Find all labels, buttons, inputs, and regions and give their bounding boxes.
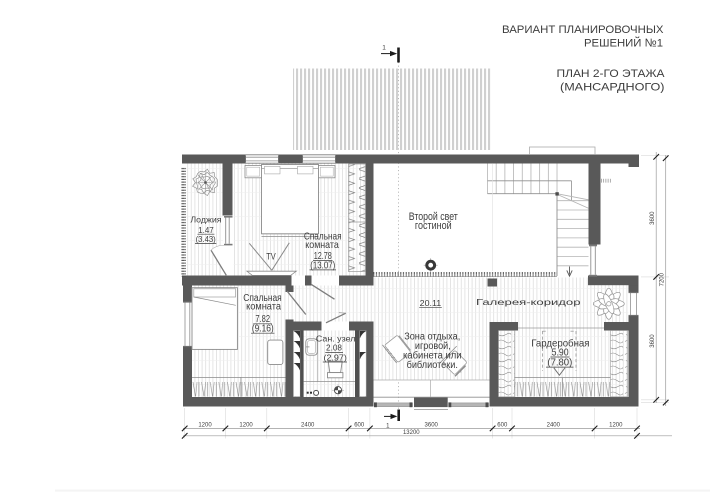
svg-text:2400: 2400 bbox=[547, 422, 561, 428]
svg-text:(3.43): (3.43) bbox=[196, 235, 216, 244]
svg-text:гостиной: гостиной bbox=[415, 220, 452, 232]
svg-text:Галерея-коридор: Галерея-коридор bbox=[476, 297, 581, 307]
svg-text:РЕШЕНИЙ №1: РЕШЕНИЙ №1 bbox=[584, 37, 663, 50]
svg-text:(МАНСАРДНОГО): (МАНСАРДНОГО) bbox=[560, 82, 665, 94]
svg-text:2.08: 2.08 bbox=[326, 344, 342, 353]
svg-text:3600: 3600 bbox=[650, 211, 656, 225]
svg-text:(2.97): (2.97) bbox=[324, 353, 348, 362]
svg-text:ПЛАН 2-ГО ЭТАЖА: ПЛАН 2-ГО ЭТАЖА bbox=[557, 68, 665, 80]
svg-text:TV: TV bbox=[266, 252, 276, 262]
svg-text:7200: 7200 bbox=[659, 272, 665, 286]
svg-text:Сан. узел: Сан. узел bbox=[316, 334, 356, 343]
svg-text:600: 600 bbox=[354, 422, 365, 428]
svg-text:1200: 1200 bbox=[198, 422, 212, 428]
svg-text:3600: 3600 bbox=[425, 422, 439, 428]
svg-text:библиотеки.: библиотеки. bbox=[407, 360, 458, 371]
svg-text:1200: 1200 bbox=[239, 422, 253, 428]
svg-text:ВАРИАНТ ПЛАНИРОВОЧНЫХ: ВАРИАНТ ПЛАНИРОВОЧНЫХ bbox=[502, 24, 664, 36]
svg-text:13200: 13200 bbox=[403, 430, 420, 436]
svg-text:3600: 3600 bbox=[650, 334, 656, 348]
svg-text:20.11: 20.11 bbox=[420, 298, 442, 308]
svg-text:2400: 2400 bbox=[301, 422, 315, 428]
svg-text:1.47: 1.47 bbox=[198, 226, 214, 235]
svg-text:Лоджия: Лоджия bbox=[190, 216, 221, 225]
svg-text:комната: комната bbox=[305, 240, 339, 251]
svg-text:1: 1 bbox=[382, 45, 386, 52]
svg-text:комната: комната bbox=[246, 302, 281, 313]
svg-text:600: 600 bbox=[497, 422, 508, 428]
svg-text:1200: 1200 bbox=[609, 422, 623, 428]
